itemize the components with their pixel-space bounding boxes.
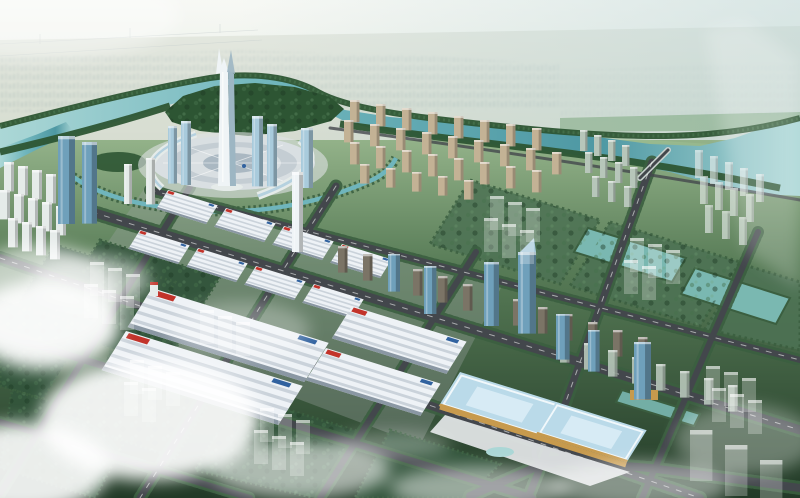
aerial-rendering-canvas <box>0 0 800 498</box>
white-market-tower <box>292 172 303 252</box>
forecourt-fountain <box>486 447 514 457</box>
tallest-glass-tower <box>518 252 536 334</box>
city-masterplan-rendering <box>0 0 800 498</box>
